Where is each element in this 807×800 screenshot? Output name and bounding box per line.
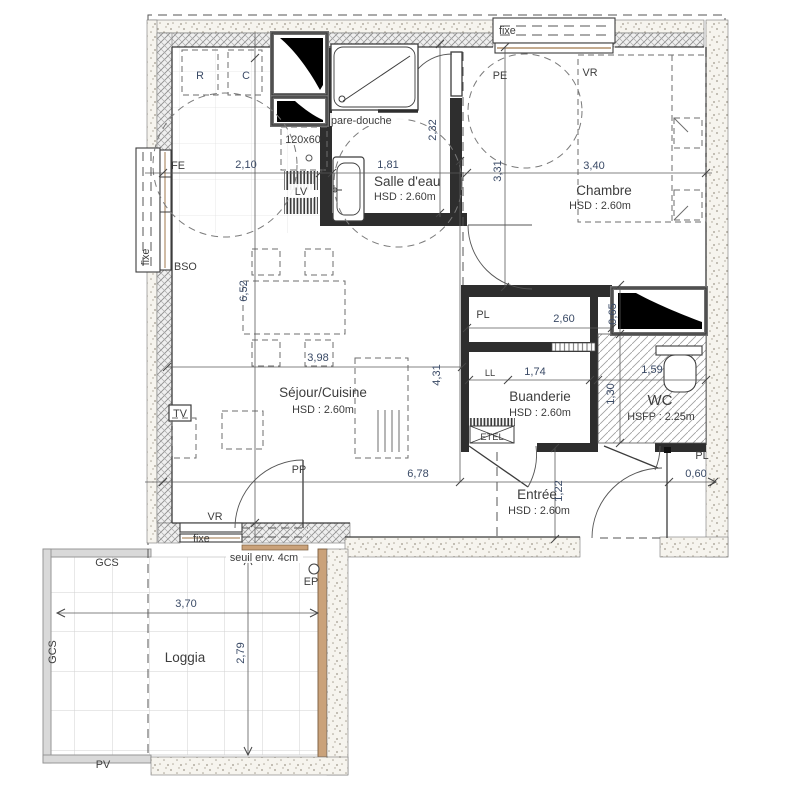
dim-sejour-depth: 6,52 [238,280,250,301]
label-vr-top: VR [583,67,598,79]
dim-bath-depth: 2,32 [427,119,439,140]
room-hsd-sejour: HSD : 2.60m [292,404,354,416]
room-label-entree: Entrée [517,487,557,502]
loggia-railing-top [43,549,151,557]
sofa [172,418,196,458]
wc-door-leaf [604,446,658,468]
dim-entrance-width: 0,60 [685,468,706,480]
label-closet-pl: PL [476,309,489,321]
label-worktop: 120x60 [285,134,320,146]
label-etel: ETEL [480,432,503,442]
room-label-sejour: Séjour/Cuisine [279,385,367,400]
room-hsd-chambre: HSD : 2.60m [569,200,631,212]
label-fixe-top: fixe [499,25,516,37]
toilet-tank [656,346,702,355]
room-label-buanderie: Buanderie [509,389,571,404]
label-vr-bottom: VR [208,511,223,523]
room-hsd-entree: HSD : 2.60m [508,505,570,517]
dim-buanderie-width: 1,74 [524,366,545,378]
bathroom-door-panel [451,52,462,96]
room-label-loggia: Loggia [165,650,206,665]
label-pp: PP [292,464,306,476]
label-gcs-top: GCS [95,557,118,569]
dim-entree-depth: 1,22 [553,480,565,501]
room-hsd-buanderie: HSD : 2.60m [509,407,571,419]
dim-loggia-depth: 2,79 [235,642,247,663]
window-vr-bottom [180,523,242,532]
floor-plan-page: Séjour/Cuisine HSD : 2.60m Salle d'eau H… [0,0,807,800]
dim-wc-depth: 1,30 [605,383,617,404]
bedroom-door-arc [468,225,532,289]
room-hsfp-wc: HSFP : 2.25m [627,411,695,423]
etel-hatch [469,418,515,426]
label-pe: PE [493,70,507,82]
dim-chambre-width: 3,40 [583,160,604,172]
laundry-door-leaf [469,446,528,487]
label-fixe-bottom: fixe [193,533,210,545]
label-fe: FE [171,160,185,172]
dim-closet-width: 2,60 [553,313,574,325]
floor-plan: Séjour/Cuisine HSD : 2.60m Salle d'eau H… [0,0,807,800]
label-cooking: C [242,70,250,82]
washbasin [333,157,364,221]
label-tv: TV [173,408,188,420]
dim-chambre-depth: 3,31 [492,160,504,181]
sideboard [355,358,408,458]
label-shower-screen: pare-douche [331,115,392,127]
rainwater-pipe [309,564,319,574]
label-gcs-left: GCS [47,640,59,663]
loggia-threshold [242,545,308,550]
dim-loggia-width: 3,70 [175,598,196,610]
label-dishwasher: LV [295,186,308,198]
floor-grids [51,47,320,755]
dim-bath-width: 1,81 [377,159,398,171]
loggia-side-wall [318,549,327,757]
label-threshold: seuil env. 4cm [230,552,298,564]
label-washer: LL [485,368,495,378]
label-bso: BSO [174,261,197,273]
dim-sejour-height: 4,31 [431,364,443,385]
label-fridge: R [196,70,204,82]
dining-table [243,281,345,334]
toilet-bowl [664,355,696,392]
dim-sejour-width: 3,98 [307,352,328,364]
dim-closet-depth: 0,65 [607,303,619,324]
label-entrance-pl: PL [695,450,708,462]
dim-kitchen-width: 2,10 [235,159,256,171]
dim-total-width: 6,78 [407,468,428,480]
dim-wc-width: 1,59 [641,364,662,376]
entrance-door-arc [592,468,662,538]
room-label-chambre: Chambre [576,183,632,198]
label-pv: PV [96,759,111,771]
room-hsd-salle-deau: HSD : 2.60m [374,191,436,203]
room-label-wc: WC [648,392,673,409]
label-ep: EP [304,576,318,588]
room-label-salle-deau: Salle d'eau [374,174,440,189]
label-fixe-left: fixe [140,249,152,266]
